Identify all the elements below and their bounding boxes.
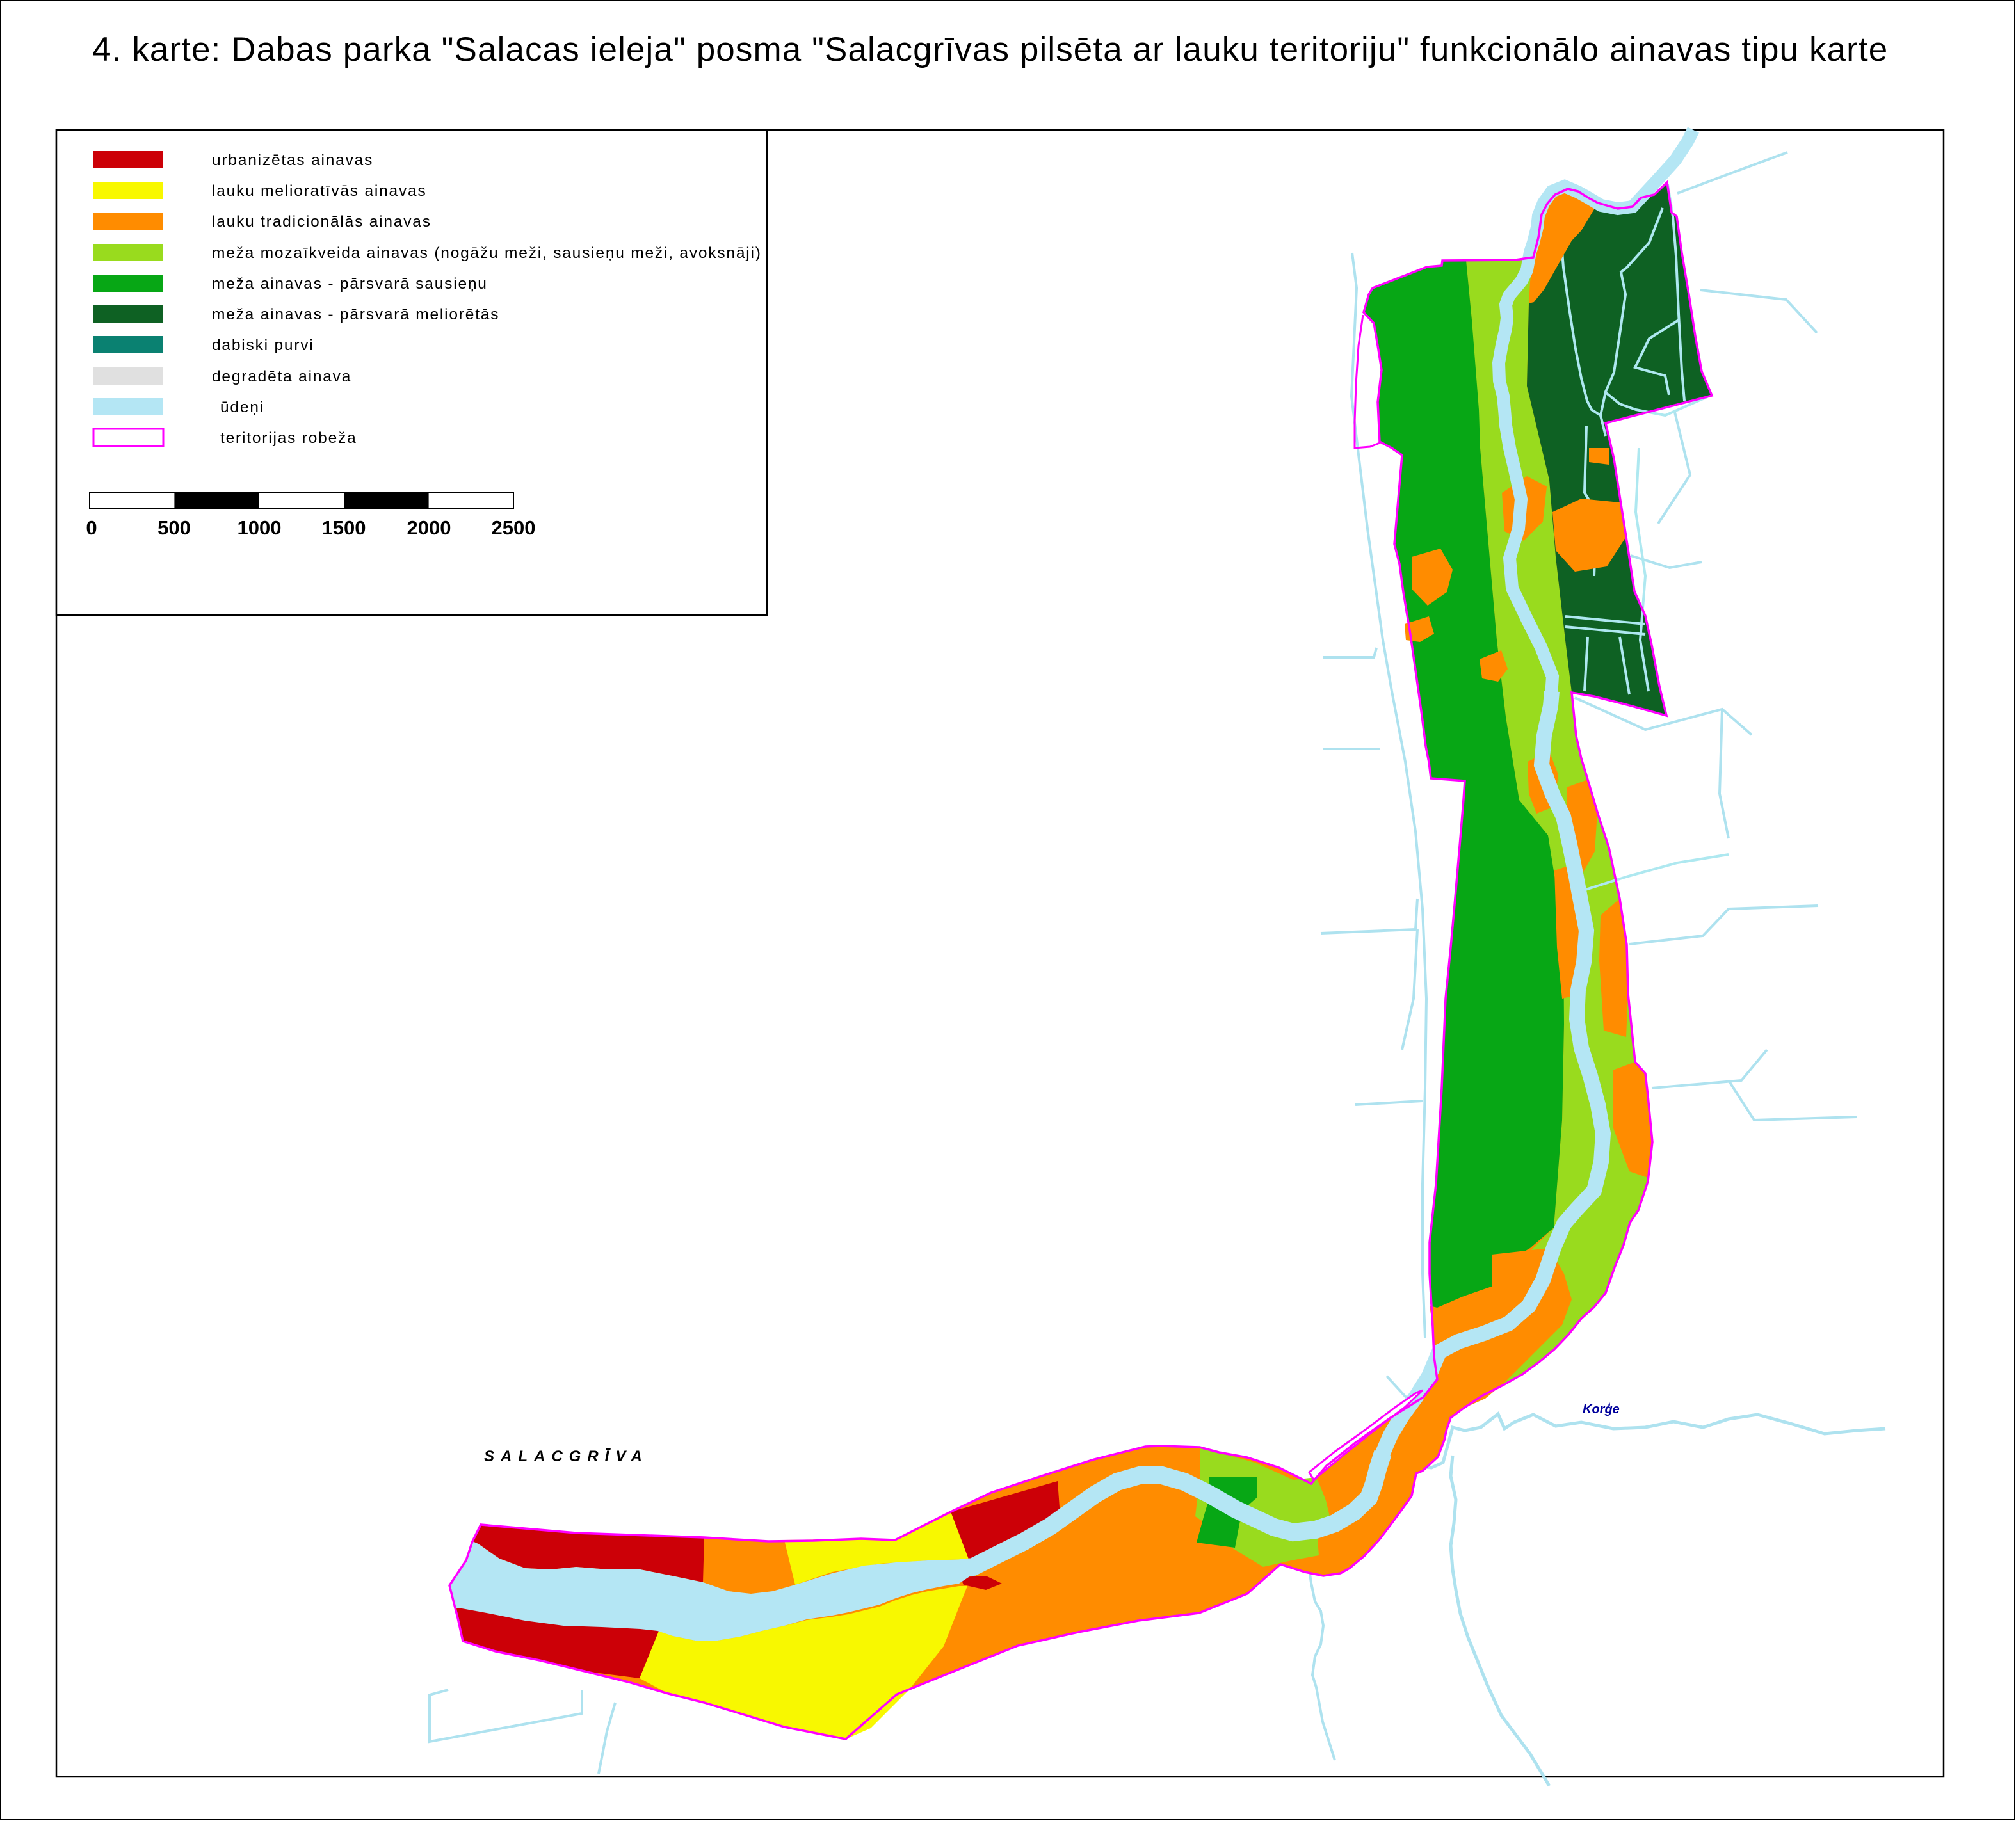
svg-text:meža ainavas - pārsvarā melior: meža ainavas - pārsvarā meliorētās [212,306,499,323]
svg-text:meža ainavas - pārsvarā sausie: meža ainavas - pārsvarā sausieņu [212,275,488,293]
svg-text:2000: 2000 [407,517,451,539]
svg-text:0: 0 [86,517,97,539]
svg-text:lauku tradicionālās ainavas: lauku tradicionālās ainavas [212,213,431,230]
svg-text:teritorijas robeža: teritorijas robeža [220,429,357,447]
svg-text:Korģe: Korģe [1583,1402,1620,1416]
svg-text:1500: 1500 [322,517,366,539]
svg-text:meža mozaīkveida ainavas (nogā: meža mozaīkveida ainavas (nogāžu meži, s… [212,245,762,262]
svg-text:4. karte: Dabas parka "Salacas: 4. karte: Dabas parka "Salacas ieleja" p… [92,31,1888,68]
svg-text:1000: 1000 [238,517,282,539]
svg-text:SALACGRĪVA: SALACGRĪVA [484,1448,649,1465]
svg-text:500: 500 [157,517,191,539]
svg-text:lauku melioratīvās ainavas: lauku melioratīvās ainavas [212,182,427,200]
svg-text:2500: 2500 [492,517,536,539]
svg-text:degradēta ainava: degradēta ainava [212,368,351,385]
svg-text:ūdeņi: ūdeņi [220,399,264,416]
svg-text:dabiski purvi: dabiski purvi [212,337,314,354]
svg-text:urbanizētas ainavas: urbanizētas ainavas [212,152,373,169]
